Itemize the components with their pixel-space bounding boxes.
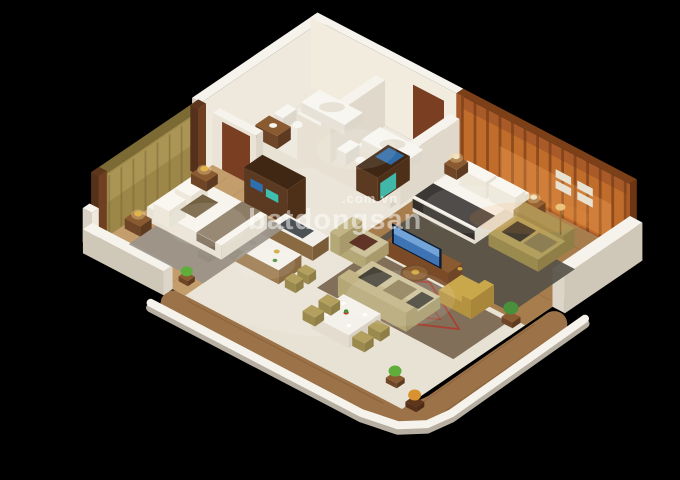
table-flowers xyxy=(344,309,348,313)
deck-plant xyxy=(408,390,421,401)
bedside-lamp xyxy=(453,154,460,159)
gold-panel-lines xyxy=(108,175,110,236)
gold-panel-lines xyxy=(133,158,135,219)
ceiling-light-glow xyxy=(316,129,396,169)
gold-panel-lines xyxy=(157,142,159,203)
floorplan-3d-render xyxy=(0,0,680,480)
bedside-lamp xyxy=(200,166,208,172)
slat-wall-lines xyxy=(474,102,477,173)
ceiling-light-glow xyxy=(345,270,455,326)
gold-panel-lines xyxy=(145,150,147,211)
gold-panel-trim-side xyxy=(198,104,206,175)
place-setting xyxy=(347,324,351,327)
gold-panel-trim-side xyxy=(190,105,198,175)
gold-panel-lines xyxy=(169,134,171,195)
bedside-lamp xyxy=(530,195,537,200)
plant xyxy=(181,266,193,276)
plant xyxy=(389,366,402,377)
gold-panel-lines xyxy=(121,166,123,227)
ceiling-light-glow xyxy=(235,247,295,279)
toilet-bowl xyxy=(293,121,303,128)
bathtub-basin xyxy=(319,102,345,112)
gold-panel-lines xyxy=(181,125,183,186)
console-decor xyxy=(457,267,462,271)
ceiling-light-glow xyxy=(167,203,247,247)
vanity-sink xyxy=(269,123,277,128)
floorplan-render-stage: .com.vn batdongsan xyxy=(0,0,680,480)
bedside-lamp xyxy=(134,211,142,217)
plant xyxy=(503,301,518,314)
slat-wall-lines xyxy=(486,109,489,181)
place-setting xyxy=(341,302,345,305)
warm-wall-glow xyxy=(470,202,590,234)
